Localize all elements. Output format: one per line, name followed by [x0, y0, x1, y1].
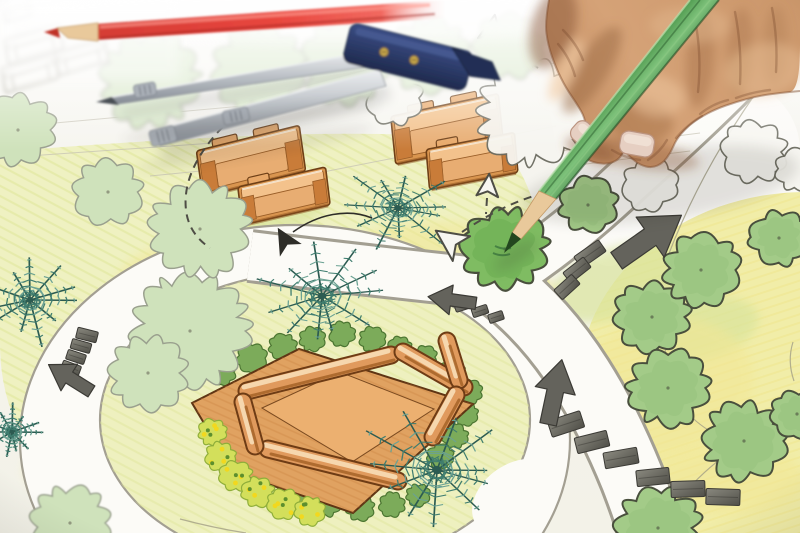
vignette-overlay	[0, 0, 800, 533]
photo-landscape-plan	[0, 0, 800, 533]
photo-vignette	[0, 0, 800, 533]
landscape-plan-photo-canvas	[0, 0, 800, 533]
